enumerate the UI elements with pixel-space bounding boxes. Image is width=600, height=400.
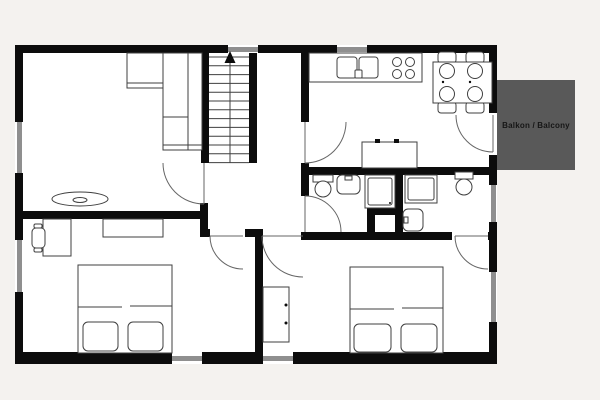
- desk-chair-icon: [32, 224, 45, 252]
- sideboard-icon: [362, 139, 417, 168]
- dresser-icon: [103, 219, 163, 237]
- washbasin-icon: [403, 209, 423, 231]
- door-swing-icon: [456, 115, 493, 152]
- toilet-icon: [455, 172, 473, 195]
- dining-chair-icon: [438, 102, 456, 113]
- dining-table-icon: [433, 52, 492, 113]
- door-swing-icon: [210, 236, 243, 269]
- fixtures-layer: [0, 0, 600, 400]
- double-bed-icon: [78, 265, 172, 353]
- dining-chair-icon: [466, 102, 484, 113]
- pillow-icon: [83, 322, 118, 351]
- floor-plan: Balkon / Balcony: [0, 0, 600, 400]
- door-swing-icon: [262, 236, 303, 277]
- coffee-table-icon: [52, 192, 108, 206]
- washbasin-icon: [337, 175, 360, 194]
- dining-chair-icon: [466, 52, 484, 63]
- pillow-icon: [354, 324, 391, 352]
- pillow-icon: [128, 322, 163, 351]
- shower-icon: [405, 175, 437, 203]
- staircase-icon: [209, 51, 249, 163]
- door-swing-icon: [305, 196, 341, 232]
- pillow-icon: [401, 324, 437, 352]
- corner-sofa-icon: [127, 53, 202, 150]
- kitchen-sink-icon: [337, 57, 378, 78]
- door-swing-icon: [455, 236, 488, 269]
- wardrobe-icon: [263, 287, 289, 342]
- double-bed-icon: [350, 267, 443, 353]
- toilet-icon: [313, 175, 333, 197]
- dining-chair-icon: [438, 52, 456, 63]
- door-swing-icon: [305, 122, 346, 163]
- shower-icon: [365, 175, 395, 208]
- desk-icon: [43, 219, 71, 256]
- door-swing-icon: [163, 163, 204, 204]
